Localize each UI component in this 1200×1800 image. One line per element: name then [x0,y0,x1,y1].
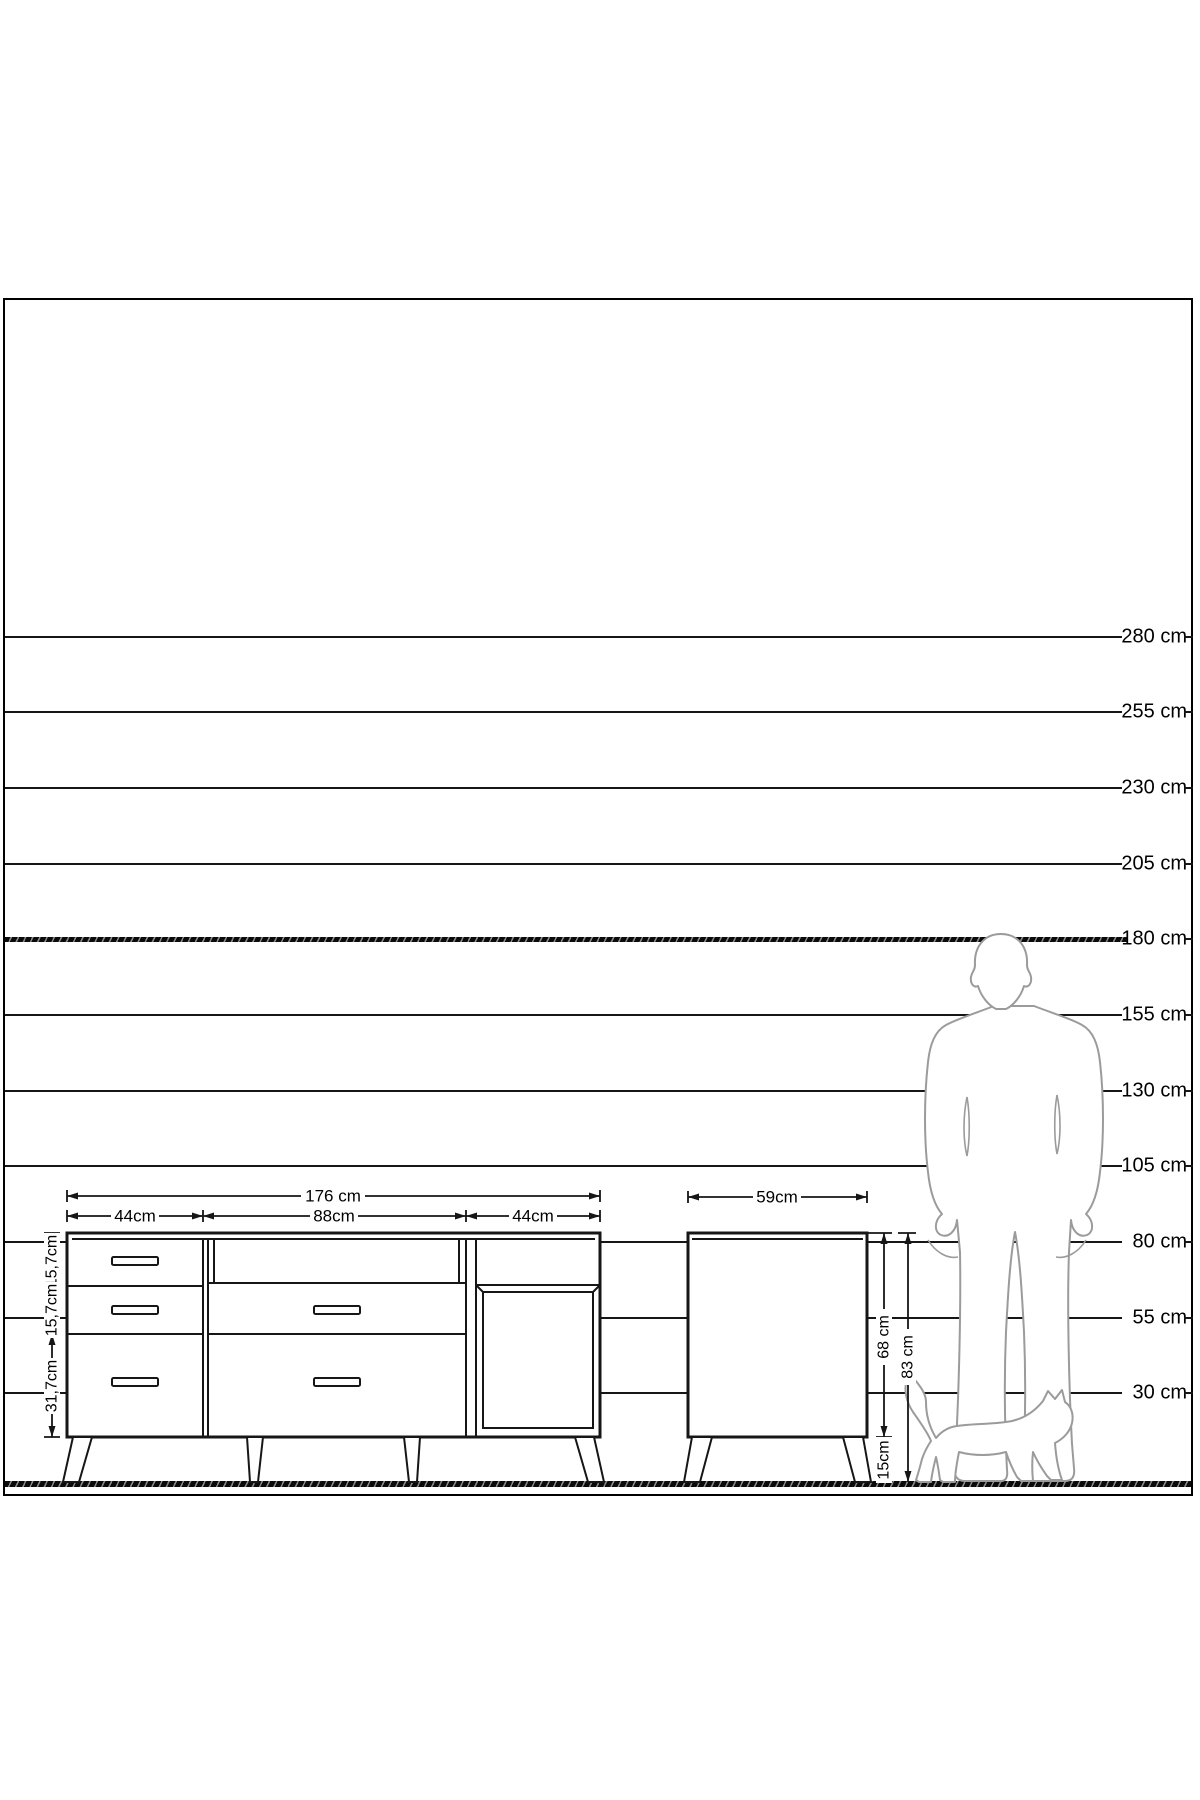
dim-drawer-heights: 15,7cm 15,7cm 31,7cm [44,1233,61,1437]
dim-label-section-1: 44cm [114,1207,156,1226]
dim-label-row-3: 31,7cm [44,1360,61,1412]
front-view [63,1233,604,1482]
side-body-outline [688,1233,867,1437]
dim-label-total-width: 176 cm [305,1187,361,1206]
dim-label-row-1: 15,7cm [44,1235,61,1287]
front-legs [63,1437,604,1482]
furniture-drawing: 176 cm 44cm 88cm 44cm 59cm 15,7cm [0,0,1200,1800]
dim-label-section-2: 88cm [313,1207,355,1226]
dim-label-leg-height: 15cm [876,1440,893,1479]
dimension-diagram: 280 cm255 cm230 cm205 cm180 cm155 cm130 … [0,0,1200,1800]
dim-label-row-2: 15,7cm [44,1284,61,1336]
man-silhouette-icon [925,934,1103,1481]
dim-section-widths: 44cm 88cm 44cm [67,1207,600,1226]
dim-label-body-height: 68 cm [876,1315,893,1359]
side-view [684,1233,871,1482]
dim-label-depth: 59cm [756,1188,798,1207]
dim-total-width: 176 cm [67,1187,600,1206]
dim-heights: 68 cm 15cm 83 cm [868,1233,917,1483]
dim-label-total-height: 83 cm [900,1335,917,1379]
dim-depth: 59cm [688,1188,867,1207]
side-legs [684,1437,871,1482]
dim-label-section-3: 44cm [512,1207,554,1226]
